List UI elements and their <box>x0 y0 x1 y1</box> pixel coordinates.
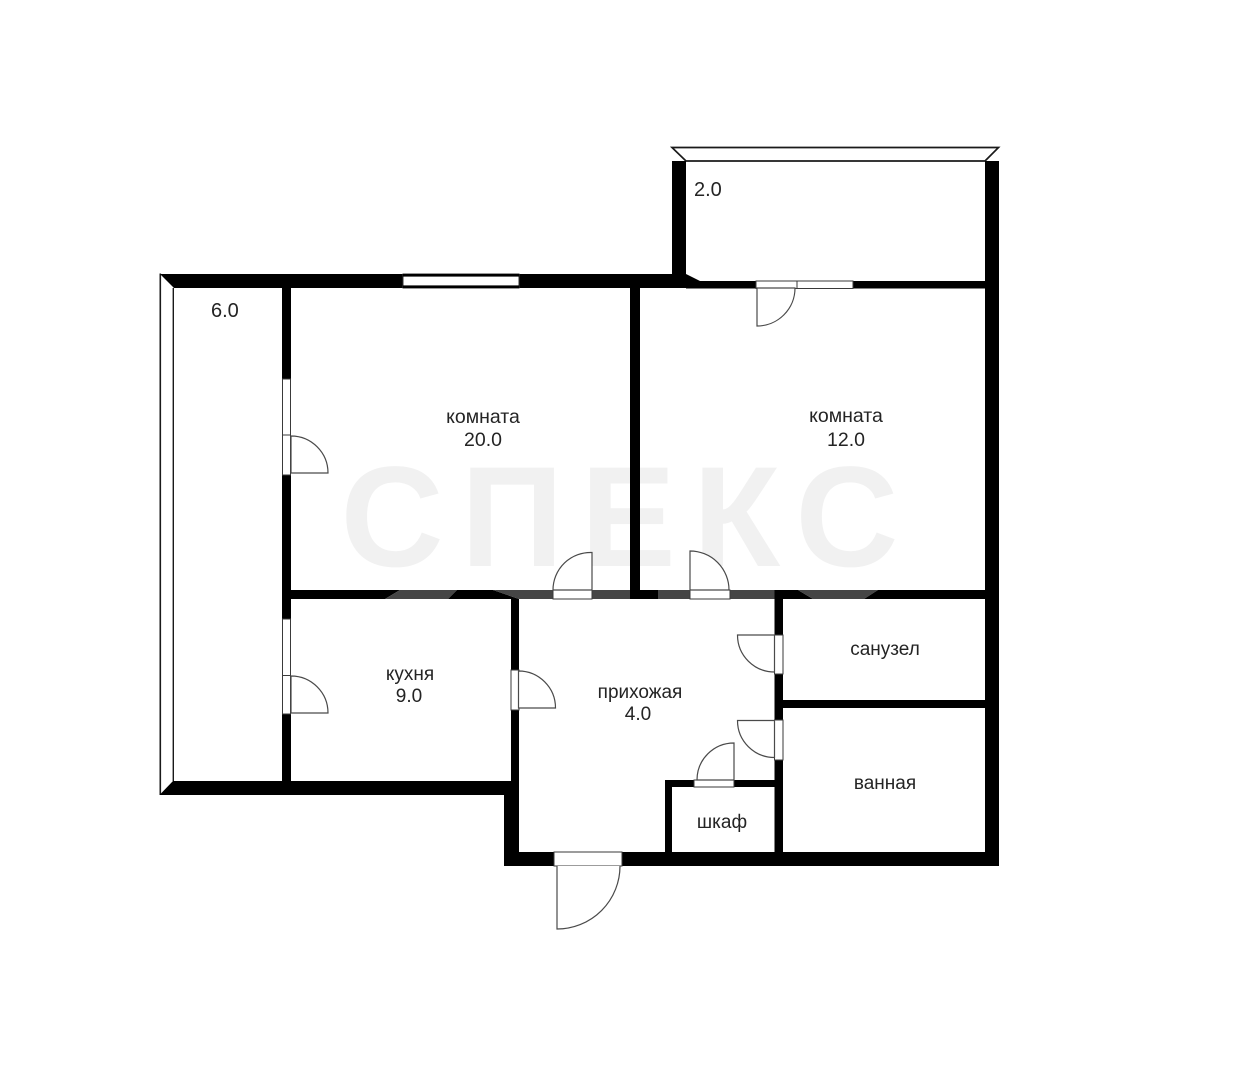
svg-text:СПЕКС: СПЕКС <box>340 438 915 597</box>
svg-text:2.0: 2.0 <box>694 179 722 201</box>
svg-text:20.0: 20.0 <box>464 429 502 451</box>
svg-text:4.0: 4.0 <box>625 704 651 725</box>
svg-text:ванная: ванная <box>854 773 916 794</box>
svg-text:комната: комната <box>446 406 520 428</box>
svg-text:санузел: санузел <box>850 639 920 660</box>
svg-text:шкаф: шкаф <box>697 812 747 833</box>
svg-text:12.0: 12.0 <box>827 429 865 451</box>
svg-text:6.0: 6.0 <box>211 300 239 322</box>
svg-text:комната: комната <box>809 405 883 427</box>
svg-text:9.0: 9.0 <box>396 686 422 707</box>
svg-text:кухня: кухня <box>386 664 434 685</box>
svg-text:прихожая: прихожая <box>598 682 683 703</box>
